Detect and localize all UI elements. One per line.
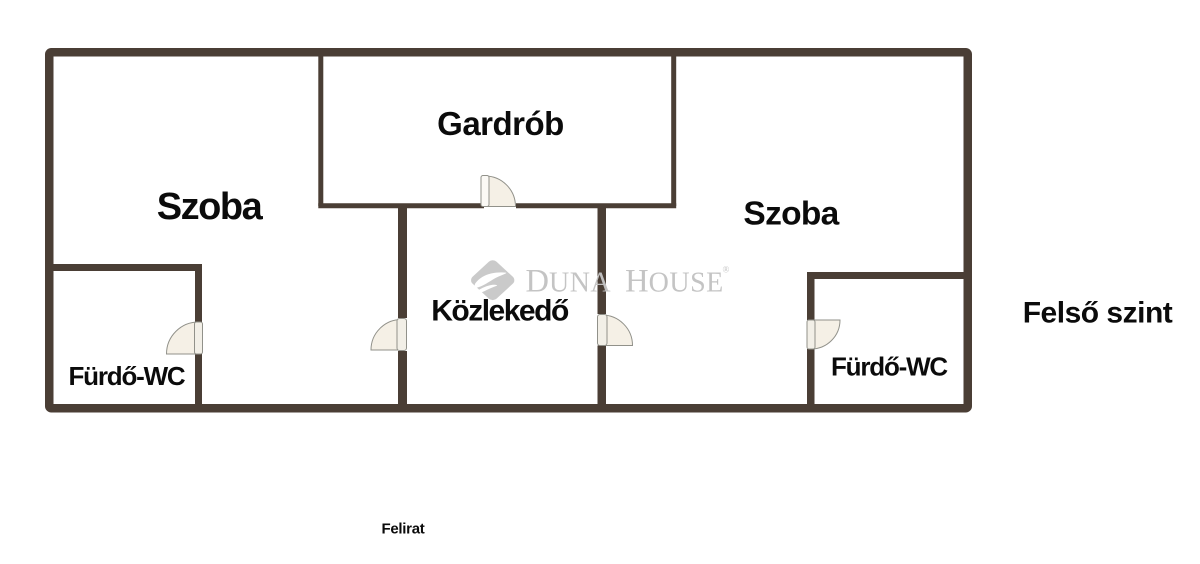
svg-text:Szoba: Szoba — [157, 186, 264, 228]
svg-text:Közlekedő: Közlekedő — [431, 295, 569, 328]
svg-text:Felirat: Felirat — [382, 521, 425, 538]
svg-text:Szoba: Szoba — [743, 196, 839, 233]
svg-text:®: ® — [723, 265, 730, 275]
svg-text:Fürdő-WC: Fürdő-WC — [68, 361, 185, 391]
svg-text:Fürdő-WC: Fürdő-WC — [831, 352, 948, 382]
svg-text:Gardrób: Gardrób — [437, 105, 564, 142]
svg-text:Felső szint: Felső szint — [1023, 297, 1173, 330]
